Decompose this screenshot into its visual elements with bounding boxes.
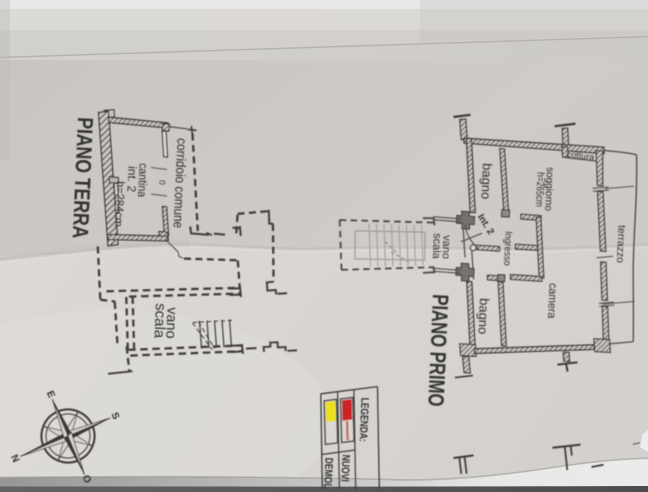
svg-text:PIANO PRIMO: PIANO PRIMO: [422, 294, 452, 407]
svg-text:0: 0: [157, 180, 167, 185]
svg-text:bagno: bagno: [478, 163, 495, 200]
svg-text:camera: camera: [545, 283, 559, 320]
svg-text:Ingresso: Ingresso: [501, 231, 514, 266]
svg-text:h=284cm: h=284cm: [111, 181, 125, 227]
svg-text:int. 2: int. 2: [124, 166, 139, 193]
svg-text:LEGENDA:: LEGENDA:: [356, 397, 370, 442]
svg-text:scala: scala: [150, 303, 169, 339]
svg-text:h=265cm: h=265cm: [533, 172, 547, 207]
svg-text:NUOVI: NUOVI: [338, 454, 351, 482]
svg-text:terrazzo: terrazzo: [614, 225, 628, 264]
svg-text:scala: scala: [430, 233, 443, 260]
svg-text:bagno: bagno: [475, 298, 492, 335]
svg-text:DEMOL: DEMOL: [321, 457, 335, 488]
